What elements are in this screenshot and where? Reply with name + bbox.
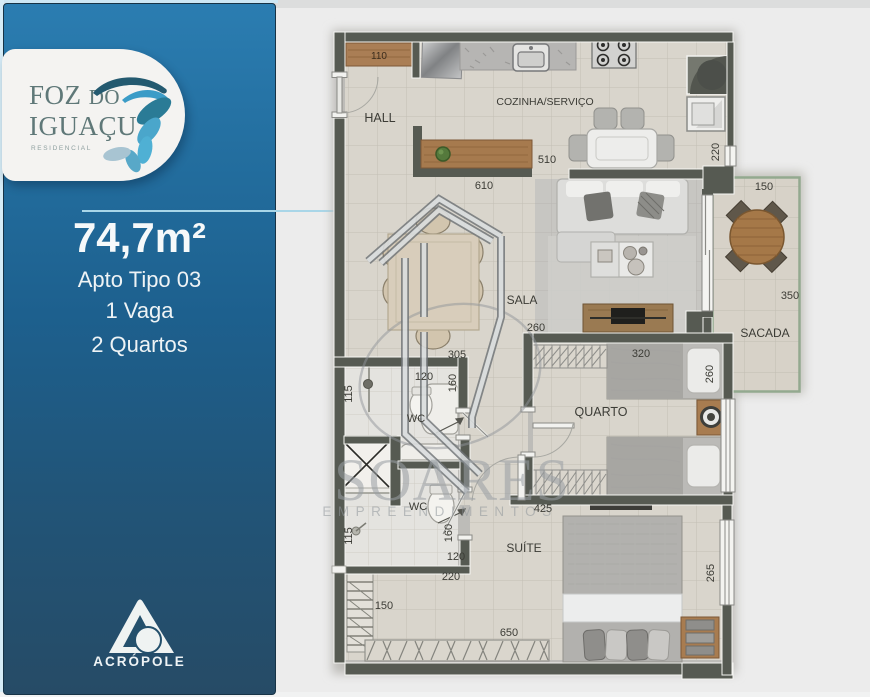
svg-text:SUÍTE: SUÍTE <box>506 540 541 555</box>
svg-text:120: 120 <box>415 371 433 383</box>
svg-text:260: 260 <box>704 365 716 383</box>
svg-text:COZINHA/SERVIÇO: COZINHA/SERVIÇO <box>496 96 593 108</box>
svg-text:265: 265 <box>705 564 717 582</box>
svg-text:320: 320 <box>632 348 650 360</box>
svg-text:SALA: SALA <box>507 293 538 307</box>
svg-text:SACADA: SACADA <box>740 326 789 340</box>
svg-text:350: 350 <box>781 290 799 302</box>
svg-text:120: 120 <box>447 551 465 563</box>
svg-text:150: 150 <box>375 600 393 612</box>
svg-text:115: 115 <box>343 527 355 545</box>
svg-text:305: 305 <box>448 349 466 361</box>
svg-text:220: 220 <box>442 571 460 583</box>
svg-text:115: 115 <box>343 385 355 403</box>
svg-text:110: 110 <box>371 51 387 62</box>
svg-text:EMPREENDIMENTOS: EMPREENDIMENTOS <box>322 504 557 519</box>
svg-text:HALL: HALL <box>364 111 395 125</box>
svg-text:WC: WC <box>409 501 427 513</box>
svg-text:510: 510 <box>538 154 556 166</box>
svg-text:160: 160 <box>447 374 459 392</box>
svg-text:425: 425 <box>534 503 552 515</box>
svg-text:220: 220 <box>710 143 722 161</box>
svg-text:150: 150 <box>755 181 773 193</box>
svg-text:WC: WC <box>407 413 425 425</box>
svg-text:160: 160 <box>443 524 455 542</box>
svg-text:610: 610 <box>475 180 493 192</box>
svg-text:650: 650 <box>500 627 518 639</box>
svg-text:QUARTO: QUARTO <box>574 405 627 419</box>
svg-text:260: 260 <box>527 322 545 334</box>
